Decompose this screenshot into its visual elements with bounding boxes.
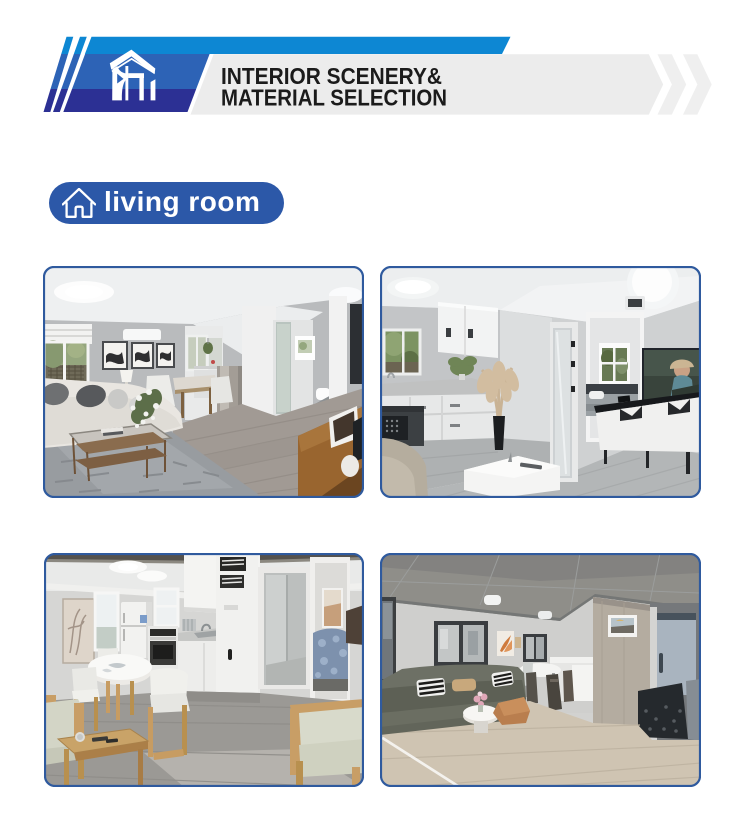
svg-text:MATERIAL SELECTION: MATERIAL SELECTION <box>221 85 447 111</box>
